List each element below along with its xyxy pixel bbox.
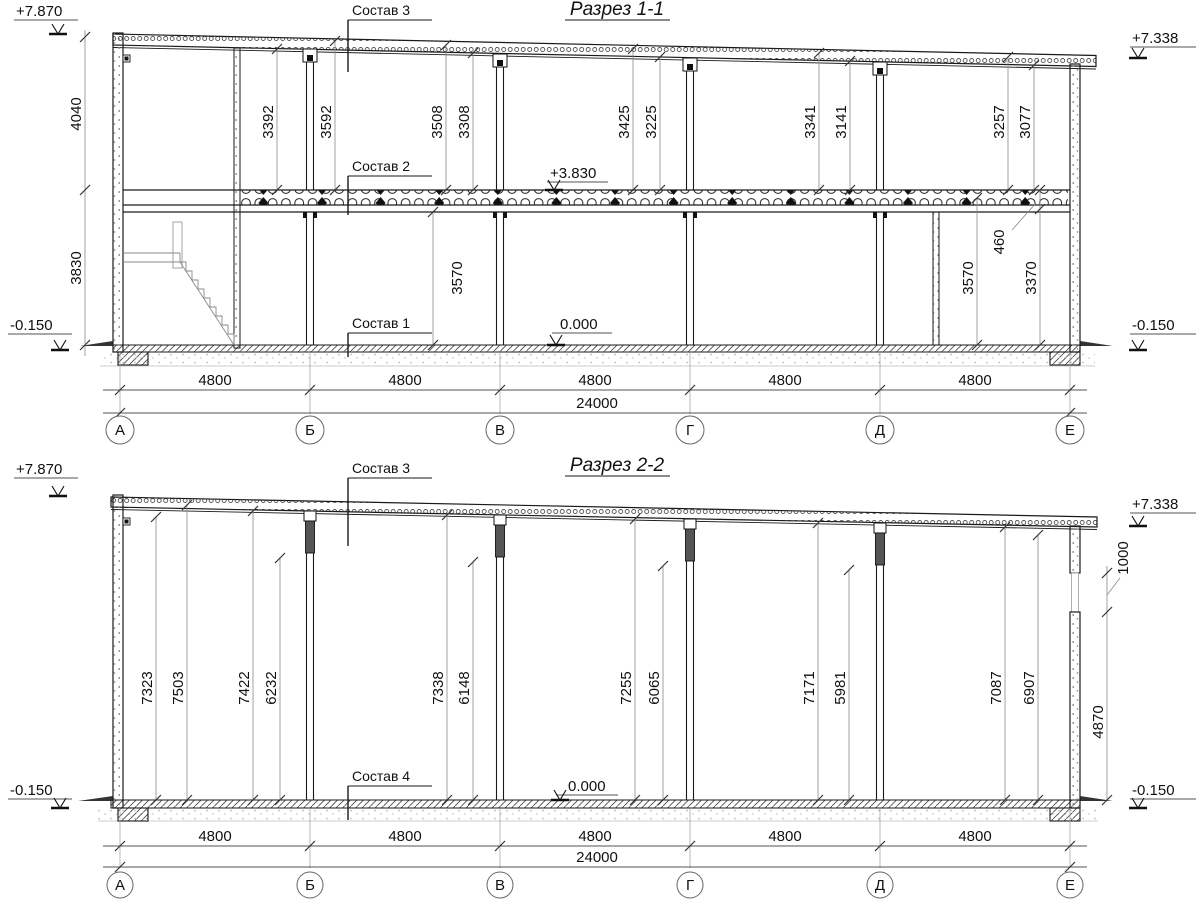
s1-grade-wedge-right	[1080, 341, 1113, 346]
s2-wall-left	[113, 495, 123, 808]
axis-bubble-v: В	[495, 877, 505, 894]
dim-label: 3508	[429, 105, 446, 138]
elevation-label: -0.150	[1132, 317, 1175, 334]
s2-column-b	[304, 511, 316, 800]
dim-label: 3570	[449, 261, 466, 294]
s2-height-dims: 7323 7503 7422 6232 7338 6148 7255 6065 …	[139, 500, 1043, 805]
s2-column-v	[494, 515, 506, 800]
s2-roof	[111, 497, 1097, 530]
dim-label: 3225	[643, 105, 660, 138]
s1-sostav1-label: Состав 1	[352, 315, 410, 331]
axis-bubble-b: Б	[305, 877, 315, 894]
dim-label: 3592	[318, 105, 335, 138]
s1-elev-zero: 0.000	[547, 316, 612, 345]
s1-elev-top-right: +7.338	[1129, 30, 1196, 58]
elevation-label: -0.150	[10, 317, 53, 334]
s1-elev-ground-right: -0.150	[1129, 317, 1196, 350]
s1-column-b	[303, 49, 317, 190]
elevation-label: -0.150	[1132, 782, 1175, 799]
dim-label: 7087	[988, 671, 1005, 704]
dim-total: 24000	[576, 395, 618, 412]
s1-floor-slab	[123, 190, 1070, 212]
s2-elev-zero: 0.000	[551, 778, 618, 800]
dim-label: 3077	[1017, 105, 1034, 138]
dim-label: 3425	[616, 105, 633, 138]
dim-bay: 4800	[958, 372, 991, 389]
dim-bay: 4800	[388, 372, 421, 389]
dim-label: 6065	[646, 671, 663, 704]
s2-elev-ground-left: -0.150	[8, 782, 72, 808]
dim-label: 3257	[991, 105, 1008, 138]
s1-wall-right	[1070, 64, 1080, 352]
dim-3830: 3830	[68, 251, 85, 284]
dim-wall-below: 4870	[1090, 705, 1107, 738]
elevation-label: +7.338	[1132, 30, 1178, 47]
dim-label: 3308	[456, 105, 473, 138]
s1-column-g	[683, 58, 697, 190]
elevation-label: +7.870	[16, 461, 62, 478]
dim-label: 3392	[260, 105, 277, 138]
section-2: Разрез 2-2	[8, 455, 1196, 898]
dim-label: 7323	[139, 671, 156, 704]
dim-label: 7171	[801, 671, 818, 704]
axis-bubble-e: Е	[1065, 877, 1075, 894]
elevation-label: -0.150	[10, 782, 53, 799]
dim-label: 6907	[1021, 671, 1038, 704]
s2-window	[1072, 573, 1079, 612]
axis-bubble-d: Д	[875, 422, 885, 439]
axis-bubble-g: Г	[686, 422, 694, 439]
s2-sostav4-label: Состав 4	[352, 768, 410, 784]
s1-sostav2-label: Состав 2	[352, 158, 410, 174]
s2-wall-bracket-core	[125, 520, 129, 524]
s2-column-d	[874, 523, 886, 800]
s1-column-v	[493, 54, 507, 190]
dim-label: 7255	[618, 671, 635, 704]
s1-partition	[933, 212, 939, 345]
axis-bubble-e: Е	[1065, 422, 1075, 439]
sections-drawing: Разрез 1-1	[0, 0, 1200, 900]
s1-sostav3-label: Состав 3	[352, 2, 410, 18]
elevation-label: +7.870	[16, 3, 62, 20]
s1-elev-top-left: +7.870	[14, 3, 78, 34]
s1-foundation-left	[118, 352, 148, 365]
dim-4040: 4040	[68, 97, 85, 130]
s2-foundation-right	[1050, 808, 1080, 821]
dim-bay: 4800	[578, 828, 611, 845]
s1-lower-dims: 3570 3570 3370 460	[428, 185, 1045, 350]
axis-bubble-g: Г	[686, 877, 694, 894]
dim-label: 3370	[1023, 261, 1040, 294]
drawing-sheet: Разрез 1-1	[0, 0, 1200, 900]
s1-elev-ground-left: -0.150	[8, 317, 72, 350]
s1-wall-left	[113, 33, 123, 352]
s1-axis-bubbles: А Б В Г Д Е	[106, 416, 1084, 444]
s2-columns	[304, 511, 886, 800]
s2-elev-top-right: +7.338	[1129, 496, 1196, 526]
s1-stair-wall	[234, 48, 240, 348]
elevation-label: 0.000	[568, 778, 606, 795]
s1-foundation-right	[1050, 352, 1080, 365]
section-1: Разрез 1-1	[8, 0, 1196, 444]
dim-label: 6232	[263, 671, 280, 704]
s1-callout-sostav2: Состав 2	[348, 158, 432, 215]
s1-stairs	[123, 222, 234, 345]
dim-total: 24000	[576, 849, 618, 866]
dim-label: 5981	[832, 671, 849, 704]
s2-right-dims: 1000 4870	[1090, 541, 1132, 805]
axis-bubble-a: А	[115, 877, 125, 894]
dim-bay: 4800	[958, 828, 991, 845]
s1-roof	[113, 34, 1096, 69]
s1-wall-bracket-core	[125, 57, 129, 61]
dim-label: 7338	[430, 671, 447, 704]
axis-bubble-a: А	[115, 422, 125, 439]
dim-bay: 4800	[388, 828, 421, 845]
s1-left-dim-chain: 4040 3830	[68, 30, 90, 356]
section-2-title: Разрез 2-2	[570, 455, 665, 476]
s2-ground	[78, 796, 1113, 821]
dim-label: 3141	[833, 105, 850, 138]
s1-column-d	[873, 62, 887, 190]
s2-axis-bubbles: А Б В Г Д Е	[107, 872, 1083, 898]
section-1-title: Разрез 1-1	[570, 0, 664, 20]
dim-bay: 4800	[768, 372, 801, 389]
dim-label: 3570	[960, 261, 977, 294]
dim-label: 6148	[456, 671, 473, 704]
axis-bubble-b: Б	[305, 422, 315, 439]
s2-wall-right	[1070, 526, 1080, 808]
s2-foundation-left	[118, 808, 148, 821]
s2-elev-ground-right: -0.150	[1129, 782, 1196, 808]
elevation-label: +7.338	[1132, 496, 1178, 513]
axis-bubble-v: В	[495, 422, 505, 439]
dim-label-460: 460	[991, 229, 1008, 254]
dim-bay: 4800	[198, 828, 231, 845]
s1-callout-sostav3: Состав 3	[348, 2, 432, 72]
s2-elev-top-left: +7.870	[14, 461, 78, 496]
axis-bubble-d: Д	[875, 877, 885, 894]
s2-grade-wedge-left	[78, 796, 113, 801]
s2-column-g	[684, 519, 696, 800]
dim-bay: 4800	[768, 828, 801, 845]
dim-bay: 4800	[198, 372, 231, 389]
s2-sostav3-label: Состав 3	[352, 460, 410, 476]
elevation-label: 0.000	[560, 316, 598, 333]
dim-window: 1000	[1115, 541, 1132, 574]
dim-label: 7422	[236, 671, 253, 704]
dim-label: 3341	[802, 105, 819, 138]
dim-bay: 4800	[578, 372, 611, 389]
elevation-label: +3.830	[550, 165, 596, 182]
dim-label: 7503	[170, 671, 187, 704]
s1-elev-floor2: +3.830	[545, 165, 608, 190]
